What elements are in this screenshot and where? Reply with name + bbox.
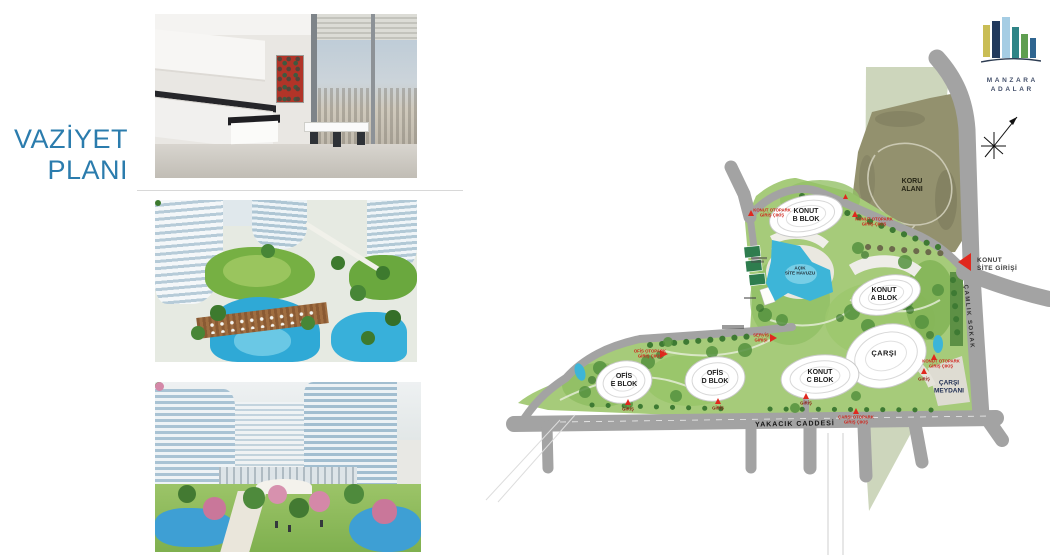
label-giris-ofis-e: GİRİŞ — [622, 406, 634, 411]
label-konut-site-girisi: KONUT SİTE GİRİŞİ — [977, 257, 1017, 272]
north-arrow-icon — [981, 117, 1017, 159]
label-konut-otopark-kuzey: KONUT OTOPARK GİRİŞ-ÇIKIŞ — [855, 217, 893, 228]
parcel-lines — [828, 433, 843, 555]
label-konut-b-blok: KONUT B BLOK — [793, 208, 820, 225]
label-konut-otopark-bati: KONUT OTOPARK GİRİŞ ÇIKIŞ — [753, 208, 791, 219]
label-giris-konut-c: GİRİŞ — [800, 400, 812, 405]
label-carsi-meydani: ÇARŞI MEYDANI — [934, 379, 964, 394]
site-plan-graphic — [0, 0, 1050, 555]
label-konut-c-blok: KONUT C BLOK — [807, 369, 834, 386]
presentation-slide: VAZİYET PLANI — [0, 0, 1050, 555]
label-acik-site-havuzu: AÇIK SİTE HAVUZU — [785, 266, 815, 277]
label-servis-girisi: SERVİS GİRİŞİ — [753, 333, 769, 344]
label-koru-alani: KORU ALANI — [901, 178, 922, 195]
label-konut-a-blok: KONUT A BLOK — [871, 287, 898, 304]
label-ofis-d-blok: OFİS D BLOK — [702, 370, 729, 387]
label-ofis-otopark: OFİS OTOPARK GİRİŞ ÇIKIŞ — [634, 349, 666, 360]
label-konut-otopark-dogu: KONUT OTOPARK GİRİŞ ÇIKIŞ — [922, 359, 960, 370]
label-yakacik-caddesi: YAKACIK CADDESİ — [755, 420, 835, 430]
label-ofis-e-blok: OFİS E BLOK — [611, 373, 637, 390]
label-carsi: ÇARŞI — [871, 350, 896, 359]
label-giris-ofis-d: GİRİŞ — [712, 405, 724, 410]
label-carsi-otopark: ÇARŞI OTOPARK GİRİŞ ÇIKIŞ — [838, 415, 874, 426]
label-giris-carsi: GİRİŞ — [918, 376, 930, 381]
